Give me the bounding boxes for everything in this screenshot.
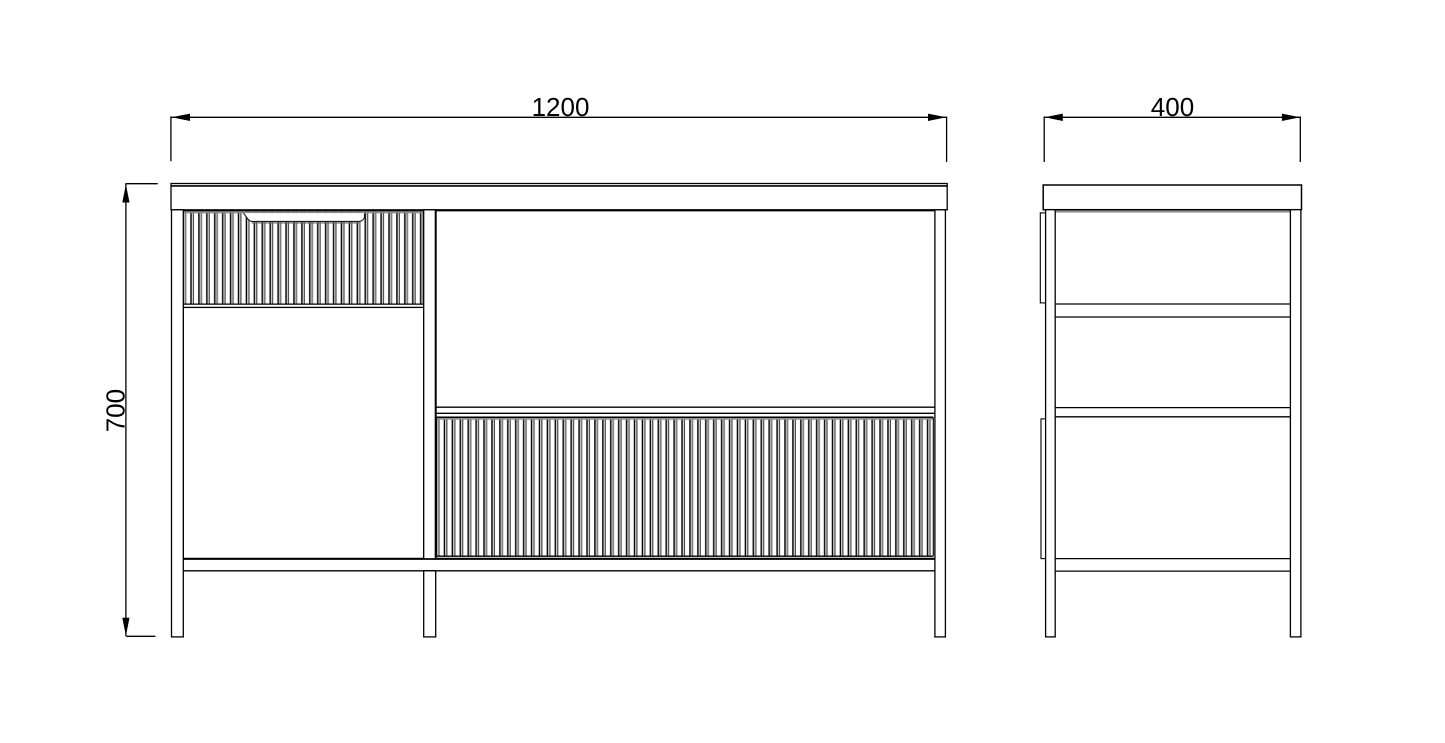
svg-text:700: 700: [101, 389, 131, 432]
svg-text:1200: 1200: [532, 92, 590, 122]
svg-text:400: 400: [1151, 92, 1194, 122]
